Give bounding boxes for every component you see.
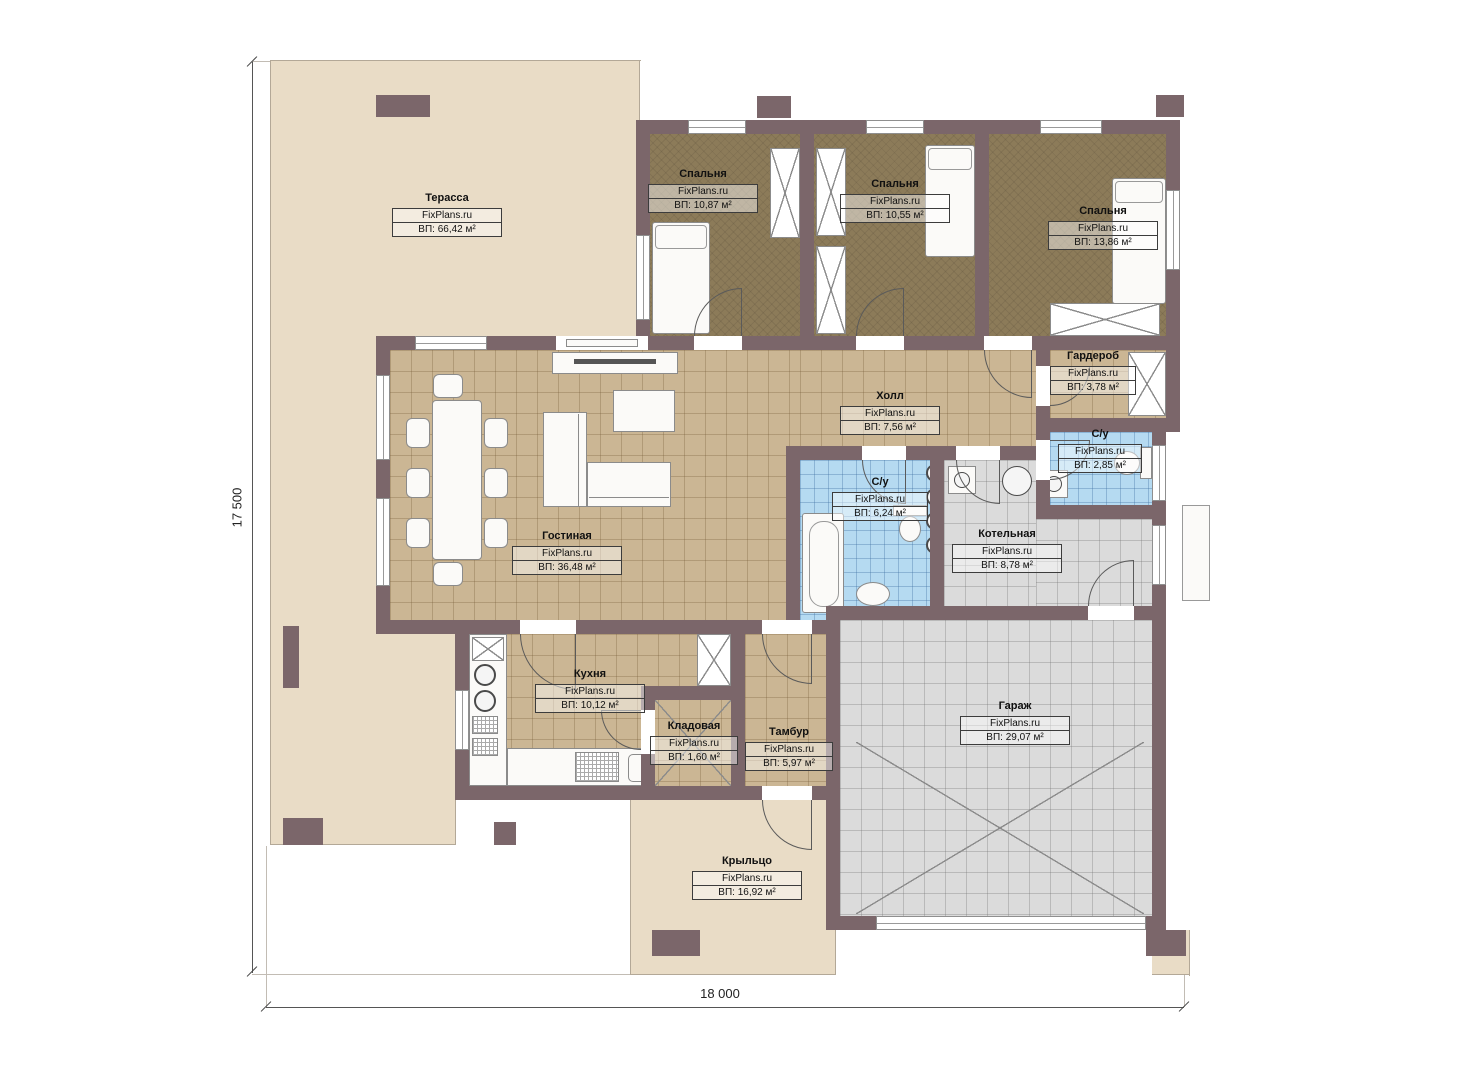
closet [770, 148, 800, 238]
platform-edge [1152, 974, 1190, 975]
room-info-box: FixPlans.ru ВП: 13,86 м² [1048, 221, 1158, 250]
room-info-box: FixPlans.ru ВП: 10,12 м² [535, 684, 645, 713]
chimney [1182, 505, 1210, 601]
room-info-box: FixPlans.ru ВП: 5,97 м² [745, 742, 833, 771]
room-info-box: FixPlans.ru ВП: 6,24 м² [832, 492, 928, 521]
room-area: ВП: 10,12 м² [536, 699, 644, 712]
dining-table [432, 400, 482, 560]
pillow [1115, 181, 1163, 203]
room-name: Гостиная [512, 530, 622, 544]
wall-segment [826, 620, 840, 930]
sofa [543, 412, 587, 507]
room-label-kitchen: Кухня FixPlans.ru ВП: 10,12 м² [535, 668, 645, 713]
fridge [472, 637, 504, 661]
room-area: ВП: 3,78 м² [1051, 381, 1135, 394]
room-info-box: FixPlans.ru ВП: 2,85 м² [1058, 444, 1142, 473]
platform-edge [270, 60, 271, 845]
garage-floor-cross [856, 742, 1144, 914]
room-info-box: FixPlans.ru ВП: 7,56 м² [840, 406, 940, 435]
room-area: ВП: 6,24 м² [833, 507, 927, 520]
room-area: ВП: 13,86 м² [1049, 236, 1157, 249]
garage-door [876, 916, 1146, 930]
chair [484, 518, 508, 548]
dishwasher [575, 752, 619, 782]
oven [472, 738, 498, 756]
watermark-text: FixPlans.ru [651, 737, 737, 751]
sofa [587, 462, 671, 507]
closet [816, 246, 846, 334]
closet [1050, 303, 1160, 336]
watermark-text: FixPlans.ru [841, 195, 949, 209]
door-opening [694, 336, 742, 350]
door-opening [1088, 606, 1134, 620]
watermark-text: FixPlans.ru [1059, 445, 1141, 459]
room-label-terrace: Терасса FixPlans.ru ВП: 66,42 м² [392, 192, 502, 237]
pier [283, 626, 299, 688]
dimension-line-horizontal [266, 1007, 1184, 1008]
room-name: Кухня [535, 668, 645, 682]
watermark-text: FixPlans.ru [393, 209, 501, 223]
platform-edge [835, 930, 836, 975]
watermark-text: FixPlans.ru [536, 685, 644, 699]
tv [574, 359, 656, 364]
room-area: ВП: 29,07 м² [961, 731, 1069, 744]
door-opening [984, 336, 1032, 350]
room-info-box: FixPlans.ru ВП: 3,78 м² [1050, 366, 1136, 395]
watermark-text: FixPlans.ru [1051, 367, 1135, 381]
platform-edge [630, 974, 836, 975]
dimension-line-vertical [252, 62, 253, 973]
pier [283, 818, 323, 845]
stove-burner [474, 664, 496, 686]
wall-segment [376, 336, 1180, 350]
sliding-door [566, 339, 638, 347]
extension-line [266, 846, 267, 1007]
pillow [928, 148, 972, 170]
room-name: С/у [1058, 428, 1142, 442]
room-area: ВП: 16,92 м² [693, 886, 801, 899]
oven [472, 716, 498, 734]
window [1152, 525, 1166, 585]
wall-segment [1036, 505, 1166, 519]
room-name: Спальня [1048, 205, 1158, 219]
room-info-box: FixPlans.ru ВП: 8,78 м² [952, 544, 1062, 573]
door-opening [762, 620, 812, 634]
room-name: Крыльцо [692, 855, 802, 869]
room-label-bedroom1: Спальня FixPlans.ru ВП: 10,87 м² [648, 168, 758, 213]
window [415, 336, 487, 350]
watermark-text: FixPlans.ru [649, 185, 757, 199]
wall-segment [731, 634, 745, 686]
room-area: ВП: 2,85 м² [1059, 459, 1141, 472]
room-area: ВП: 10,55 м² [841, 209, 949, 222]
watermark-text: FixPlans.ru [693, 872, 801, 886]
room-label-porch: Крыльцо FixPlans.ru ВП: 16,92 м² [692, 855, 802, 900]
window [376, 498, 390, 586]
boiler-unit [1002, 466, 1032, 496]
pillow [655, 225, 707, 249]
room-name: Терасса [392, 192, 502, 206]
platform-edge [455, 800, 456, 845]
room-label-bedroom3: Спальня FixPlans.ru ВП: 13,86 м² [1048, 205, 1158, 250]
window [455, 690, 469, 750]
watermark-text: FixPlans.ru [961, 717, 1069, 731]
pier [494, 822, 516, 845]
sink [856, 582, 890, 606]
wall-segment [641, 686, 745, 700]
door-opening [862, 446, 906, 460]
room-label-vestibule: Тамбур FixPlans.ru ВП: 5,97 м² [745, 726, 833, 771]
door-opening [520, 620, 576, 634]
wall-segment [1152, 418, 1180, 432]
watermark-text: FixPlans.ru [746, 743, 832, 757]
room-name: Спальня [840, 178, 950, 192]
room-label-bath-small: С/у FixPlans.ru ВП: 2,85 м² [1058, 428, 1142, 473]
window [376, 375, 390, 460]
pier [757, 96, 791, 118]
room-label-garage: Гараж FixPlans.ru ВП: 29,07 м² [960, 700, 1070, 745]
room-area: ВП: 8,78 м² [953, 559, 1061, 572]
wall-segment [930, 460, 944, 606]
chair [433, 562, 463, 586]
pier [652, 930, 700, 956]
watermark-text: FixPlans.ru [513, 547, 621, 561]
window [688, 120, 746, 134]
door-opening [1036, 440, 1050, 480]
wall-segment [786, 460, 800, 620]
room-info-box: FixPlans.ru ВП: 36,48 м² [512, 546, 622, 575]
room-name: Гардероб [1050, 350, 1136, 364]
chair [433, 374, 463, 398]
room-label-bedroom2: Спальня FixPlans.ru ВП: 10,55 м² [840, 178, 950, 223]
door-opening [956, 446, 1000, 460]
window [1152, 445, 1166, 501]
dimension-label-horizontal: 18 000 [660, 986, 780, 1001]
door-opening [856, 336, 904, 350]
room-name: Котельная [952, 528, 1062, 542]
chair [484, 418, 508, 448]
sofa-line [589, 497, 669, 498]
sofa-line [578, 414, 579, 506]
watermark-text: FixPlans.ru [953, 545, 1061, 559]
room-area: ВП: 1,60 м² [651, 751, 737, 764]
room-area: ВП: 36,48 м² [513, 561, 621, 574]
room-name: Тамбур [745, 726, 833, 740]
chair [406, 518, 430, 548]
dimension-label-vertical: 17 500 [230, 473, 245, 543]
room-area: ВП: 5,97 м² [746, 757, 832, 770]
room-area: ВП: 7,56 м² [841, 421, 939, 434]
bathtub-basin [809, 521, 839, 607]
room-name: Гараж [960, 700, 1070, 714]
floor-plan: 17 500 18 000 Терасса FixPlans.ru ВП: 66… [0, 0, 1474, 1080]
room-name: Спальня [648, 168, 758, 182]
pier [1146, 930, 1186, 956]
stove-burner [474, 690, 496, 712]
platform-edge [270, 60, 641, 61]
room-label-hall: Холл FixPlans.ru ВП: 7,56 м² [840, 390, 940, 435]
room-info-box: FixPlans.ru ВП: 10,87 м² [648, 184, 758, 213]
room-info-box: FixPlans.ru ВП: 29,07 м² [960, 716, 1070, 745]
entry-door-opening [762, 786, 812, 800]
room-info-box: FixPlans.ru ВП: 66,42 м² [392, 208, 502, 237]
wall-segment [786, 446, 1050, 460]
window [866, 120, 924, 134]
room-area: ВП: 10,87 м² [649, 199, 757, 212]
wall-segment [1152, 432, 1166, 930]
room-label-living: Гостиная FixPlans.ru ВП: 36,48 м² [512, 530, 622, 575]
platform-edge [639, 60, 640, 121]
wall-segment [800, 134, 814, 336]
pier [376, 95, 430, 117]
platform-edge [630, 800, 631, 975]
room-name: Кладовая [650, 720, 738, 734]
room-name: Холл [840, 390, 940, 404]
watermark-text: FixPlans.ru [841, 407, 939, 421]
room-info-box: FixPlans.ru ВП: 16,92 м² [692, 871, 802, 900]
room-info-box: FixPlans.ru ВП: 10,55 м² [840, 194, 950, 223]
terrace-floor [270, 350, 390, 845]
room-name: С/у [832, 476, 928, 490]
extension-line [252, 61, 270, 62]
cabinet [613, 390, 675, 432]
window [1040, 120, 1102, 134]
window [636, 235, 650, 320]
wall-segment [1166, 120, 1180, 432]
pier [1156, 95, 1184, 117]
vent-shaft [697, 634, 731, 686]
wall-segment [975, 134, 989, 336]
watermark-text: FixPlans.ru [1049, 222, 1157, 236]
door-opening [1036, 366, 1050, 406]
extension-line [252, 974, 632, 975]
chair [484, 468, 508, 498]
chair [406, 468, 430, 498]
window [1166, 190, 1180, 270]
room-label-wardrobe: Гардероб FixPlans.ru ВП: 3,78 м² [1050, 350, 1136, 395]
room-area: ВП: 66,42 м² [393, 223, 501, 236]
room-label-bath-main: С/у FixPlans.ru ВП: 6,24 м² [832, 476, 928, 521]
room-label-boiler: Котельная FixPlans.ru ВП: 8,78 м² [952, 528, 1062, 573]
chair [406, 418, 430, 448]
room-label-pantry: Кладовая FixPlans.ru ВП: 1,60 м² [650, 720, 738, 765]
terrace-floor [390, 630, 455, 845]
watermark-text: FixPlans.ru [833, 493, 927, 507]
platform-edge [1189, 930, 1190, 976]
room-info-box: FixPlans.ru ВП: 1,60 м² [650, 736, 738, 765]
